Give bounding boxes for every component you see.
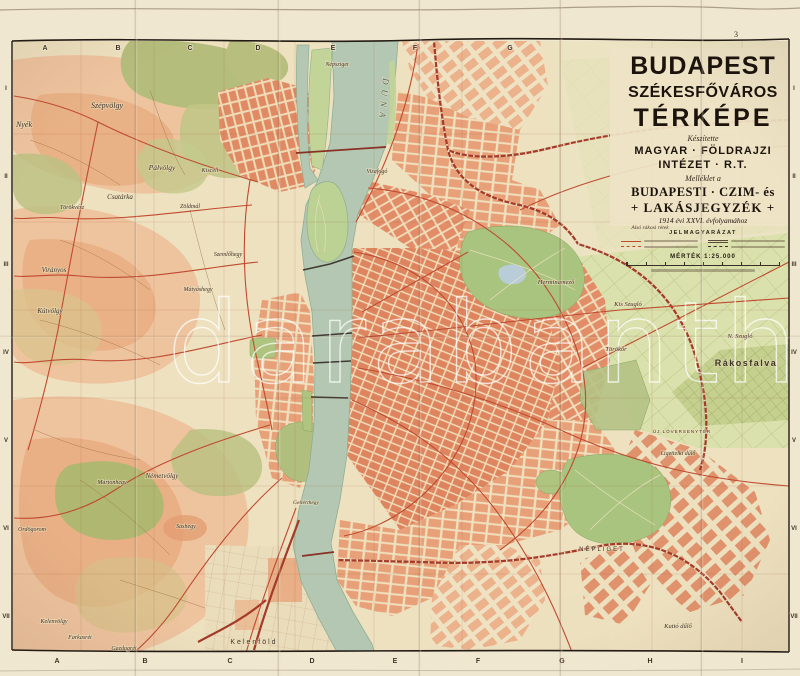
map-label: Németvölgy	[144, 472, 179, 480]
legend-row	[708, 246, 785, 249]
map-label: Csatárka	[107, 193, 133, 201]
map-label: Szemlőhegy	[214, 251, 243, 258]
grid-letter-bottom: I	[741, 658, 743, 665]
legend-row	[621, 240, 698, 243]
made-by-note: Készítette	[611, 135, 795, 143]
grid-letter-top: E	[331, 45, 336, 52]
grid-letter-top: B	[115, 45, 120, 52]
map-label: Népsziget	[324, 62, 349, 68]
supplement-line1: BUDAPESTI · CZIM- és	[611, 186, 795, 199]
map-label: Nyék	[15, 120, 32, 129]
map-label: Kelenvölgy	[40, 619, 68, 625]
legend-row	[708, 240, 785, 243]
publisher-line2: INTÉZET · R.T.	[611, 160, 795, 171]
grid-letter-bottom: C	[227, 658, 232, 665]
map-title-line3: TÉRKÉPE	[611, 106, 795, 131]
map-label: Gellérthegy	[293, 500, 320, 506]
grid-letter-bottom: H	[647, 658, 652, 665]
scale-label: MÉRTÉK 1:25.000	[611, 254, 795, 260]
grid-numeral-left: VI	[3, 526, 9, 532]
map-label: Kuttó dűlő	[663, 623, 692, 630]
grid-letter-top: A	[42, 45, 47, 52]
watermark-text: darabanth	[168, 279, 800, 409]
map-label: Zöldmál	[180, 204, 200, 210]
map-label: Kútvölgy	[36, 307, 63, 315]
grid-letter-top: C	[187, 45, 192, 52]
map-label: NÉPLIGET	[579, 546, 625, 553]
map-label: Kelenföld	[230, 639, 277, 646]
scanned-map-page: darabanth 3 ABCDEFGABCDEFGHIIIIIIIIVVVIV…	[0, 0, 800, 676]
map-label: Gazdagrét	[111, 646, 137, 652]
map-title-line2: SZÉKESFŐVÁROS	[611, 85, 795, 101]
map-label: Ligettelki dűlő	[660, 450, 697, 457]
legend-text-illegible	[644, 246, 698, 249]
grid-numeral-left: IV	[3, 350, 9, 356]
scale-caption-illegible	[651, 269, 755, 272]
map-label: Vizafogó	[367, 168, 388, 175]
grid-numeral-right: V	[792, 438, 796, 444]
legend-title: JELMAGYARÁZAT	[611, 231, 795, 237]
legend-text-illegible	[731, 246, 785, 249]
map-title-line1: BUDAPEST	[611, 54, 795, 79]
grid-letter-bottom: A	[54, 658, 59, 665]
grid-numeral-right: VII	[790, 614, 798, 620]
legend-text-illegible	[731, 240, 785, 243]
grid-letter-bottom: D	[309, 658, 314, 665]
map-label: Pálvölgy	[148, 163, 176, 172]
grid-letter-bottom: F	[476, 658, 481, 665]
map-label: Herminamező	[537, 279, 575, 286]
supplement-line2: + LAKÁSJEGYZÉK +	[611, 201, 795, 214]
title-block: BUDAPEST SZÉKESFŐVÁROS TÉRKÉPE Készített…	[611, 54, 795, 272]
map-label: Törökőr	[605, 346, 627, 353]
map-label: Szépvölgy	[91, 101, 123, 110]
map-label: Mártonhegy	[96, 480, 127, 486]
grid-numeral-right: IV	[791, 350, 797, 356]
legend-sample-dark-dashed	[708, 246, 728, 247]
map-label: Kis Szugló	[613, 301, 642, 308]
map-label: Sashegy	[176, 524, 196, 530]
legend-entries	[621, 240, 785, 249]
legend-sample-red-dashed	[621, 246, 641, 247]
map-label: ÚJ LÓVERSENYTÉR	[653, 428, 711, 434]
map-label: Virányos	[42, 266, 67, 274]
grid-numeral-left: II	[4, 174, 8, 180]
sheet-number: 3	[734, 30, 738, 39]
map-label: Rákosfalva	[715, 358, 778, 368]
legend-text-illegible	[644, 240, 698, 243]
map-label: Farkasrét	[67, 635, 92, 641]
grid-letter-bottom: G	[559, 658, 565, 665]
grid-letter-top: F	[413, 45, 418, 52]
grid-numeral-left: III	[3, 262, 8, 268]
map-label: Törökvész	[60, 205, 85, 211]
map-label: Ördögorom	[18, 525, 47, 533]
legend-row	[621, 246, 698, 249]
legend-sample-double-line	[708, 240, 728, 243]
grid-numeral-left: VII	[2, 614, 10, 620]
scale-bar	[626, 262, 780, 266]
map-label: N. Szugló	[727, 333, 754, 340]
legend-sample-red-line	[621, 241, 641, 242]
supplement-intro: Melléklet a	[611, 175, 795, 183]
map-label: Mátyáshegy	[183, 287, 213, 293]
grid-letter-bottom: E	[393, 658, 398, 665]
grid-letter-top: G	[507, 45, 513, 52]
grid-numeral-right: VI	[791, 526, 797, 532]
publisher-line1: MAGYAR · FÖLDRAJZI	[611, 146, 795, 157]
grid-letter-top: D	[255, 45, 260, 52]
grid-numeral-left: V	[4, 438, 8, 444]
grid-letter-bottom: B	[142, 658, 147, 665]
supplement-line3: 1914 évi XXVI. évfolyamához	[611, 217, 795, 225]
map-label: Kiscell	[201, 168, 219, 174]
